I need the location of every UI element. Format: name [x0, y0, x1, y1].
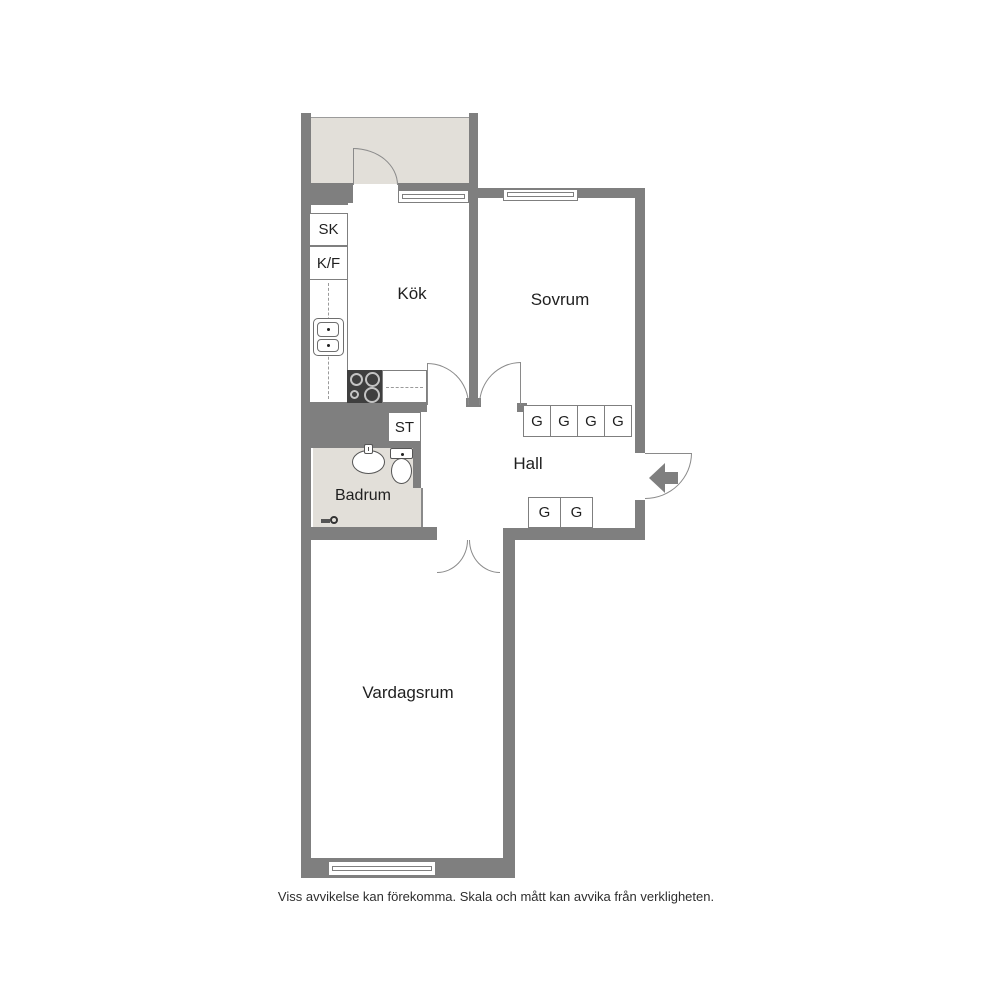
stove-burner — [365, 372, 380, 387]
wardrobe-g-label: G — [531, 413, 543, 430]
wall-livingroom-right — [503, 528, 515, 878]
entry-arrow-icon — [649, 463, 679, 493]
tap-slot — [368, 447, 369, 451]
floor-plan: SK K/F ST G G G G G G — [0, 0, 992, 992]
sink-drain-dot2 — [327, 344, 330, 347]
stove-burner — [350, 390, 359, 399]
wall-kitchen-bedroom-divider — [469, 113, 478, 407]
window-pane — [332, 866, 432, 871]
wardrobe-g: G — [560, 497, 593, 528]
wardrobe-g-label: G — [585, 413, 597, 430]
wardrobe-g: G — [604, 405, 632, 437]
wall-kitchen-top-left — [311, 183, 353, 203]
kitchen-sink-icon — [313, 318, 344, 356]
wardrobe-g: G — [550, 405, 578, 437]
fridge-freezer-kf: K/F — [309, 246, 348, 280]
wardrobe-g: G — [528, 497, 561, 528]
closet-st: ST — [388, 412, 421, 442]
floor-drain-icon — [321, 516, 339, 526]
livingroom-window-icon — [328, 861, 436, 876]
wall-bathroom-livingroom-divider — [301, 527, 437, 540]
bedroom-door-arc — [479, 362, 521, 405]
stove-icon — [347, 370, 382, 403]
counter2-dashed-line — [386, 387, 423, 388]
washbasin-tap — [364, 444, 373, 454]
wardrobe-g-label: G — [571, 504, 583, 521]
wardrobe-g: G — [577, 405, 605, 437]
closet-st-label: ST — [395, 419, 414, 436]
wardrobe-g-label: G — [539, 504, 551, 521]
wardrobe-g-label: G — [558, 413, 570, 430]
sink-drain-dot — [327, 328, 330, 331]
closet-sk: SK — [309, 213, 348, 246]
window-pane — [402, 194, 465, 199]
kitchen-label: Kök — [397, 284, 426, 304]
bedroom-window-icon — [503, 189, 578, 201]
livingroom-door-right-arc — [469, 540, 500, 573]
wardrobe-g-label: G — [612, 413, 624, 430]
wardrobe-row-hall: G G — [528, 497, 593, 528]
bathroom-door-line — [421, 488, 423, 527]
wardrobe-row-bedroom: G G G G — [523, 405, 632, 437]
closet-kf-label: K/F — [317, 255, 340, 272]
disclaimer-caption: Viss avvikelse kan förekomma. Skala och … — [0, 889, 992, 904]
stove-burner — [350, 373, 363, 386]
entry-arrow-tail — [665, 472, 678, 484]
livingroom-label: Vardagsrum — [362, 683, 453, 703]
wardrobe-g: G — [523, 405, 551, 437]
drain-spout — [321, 519, 330, 523]
stove-burner — [364, 387, 380, 403]
wall-bathroom-right — [413, 448, 421, 488]
entry-arrow-head — [649, 463, 665, 493]
livingroom-door-left-arc — [437, 540, 468, 573]
toilet-button — [401, 453, 404, 456]
closet-sk-label: SK — [318, 221, 338, 238]
wall-hall-bottom — [503, 528, 645, 540]
wall-kitchen-bottom — [301, 403, 427, 412]
kitchen-door-arc — [427, 363, 469, 405]
hall-label: Hall — [513, 454, 542, 474]
bathroom-label: Badrum — [335, 487, 391, 505]
window-pane — [507, 192, 574, 197]
kitchen-window-icon — [398, 190, 469, 203]
drain-circle — [330, 516, 338, 524]
wall-right-upper — [635, 188, 645, 453]
toilet-bowl — [391, 458, 412, 484]
bedroom-label: Sovrum — [531, 290, 590, 310]
